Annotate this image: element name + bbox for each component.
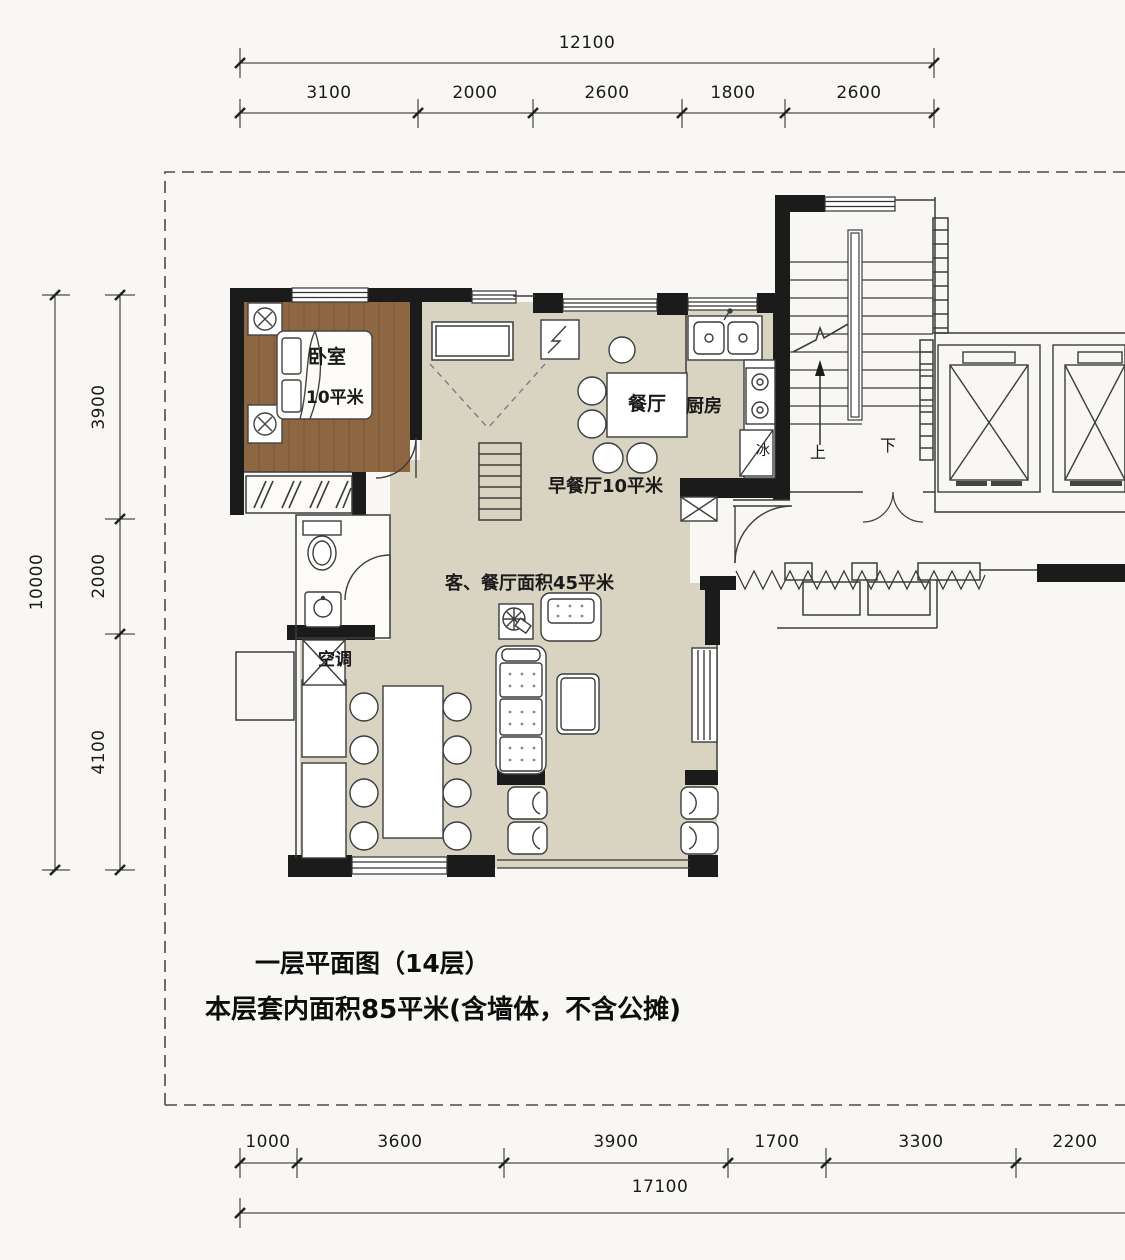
stairs-down-label: 下 [880, 437, 896, 455]
dim-bottom-seg-2: 3600 [360, 1133, 440, 1152]
dim-top-seg-2: 2000 [435, 84, 515, 103]
staircase [790, 230, 933, 522]
dim-left-seg-2: 2000 [90, 536, 110, 616]
dim-bottom-total: 17100 [620, 1178, 700, 1197]
room-label-kitchen: 厨房 [686, 397, 722, 417]
room-label-breakfast: 早餐厅10平米 [548, 477, 663, 497]
plan-subtitle: 本层套内面积85平米(含墙体，不含公摊) [205, 996, 681, 1025]
room-label-bedroom-area: 10平米 [306, 389, 364, 408]
plan-title: 一层平面图（14层） [255, 950, 490, 978]
dim-left-seg-1: 3900 [90, 367, 110, 447]
dim-top-total: 12100 [547, 34, 627, 53]
room-label-bedroom: 卧室 [308, 347, 346, 368]
dim-bottom-seg-3: 3900 [576, 1133, 656, 1152]
dim-top-seg-5: 2600 [819, 84, 899, 103]
floorplan-drawing [0, 0, 1125, 1260]
room-label-fridge: 冰 [756, 444, 770, 459]
dim-top-seg-1: 3100 [289, 84, 369, 103]
dim-bottom-seg-5: 3300 [881, 1133, 961, 1152]
room-label-living-dining: 客、餐厅面积45平米 [445, 574, 614, 594]
dim-left-total: 10000 [28, 542, 48, 622]
dim-bottom-seg-4: 1700 [737, 1133, 817, 1152]
dim-bottom-seg-1: 1000 [228, 1133, 308, 1152]
room-label-air-conditioner: 空调 [318, 651, 352, 670]
dim-bottom-seg-6: 2200 [1035, 1133, 1115, 1152]
dim-left-seg-3: 4100 [90, 712, 110, 792]
dim-top-seg-4: 1800 [693, 84, 773, 103]
dim-top-seg-3: 2600 [567, 84, 647, 103]
elevators [938, 345, 1125, 492]
entry-door [681, 497, 792, 563]
stairs-up-label: 上 [810, 444, 826, 462]
floorplan-canvas: 12100 3100 2000 2600 1800 2600 10000 390… [0, 0, 1125, 1260]
room-label-dining: 餐厅 [607, 394, 687, 415]
